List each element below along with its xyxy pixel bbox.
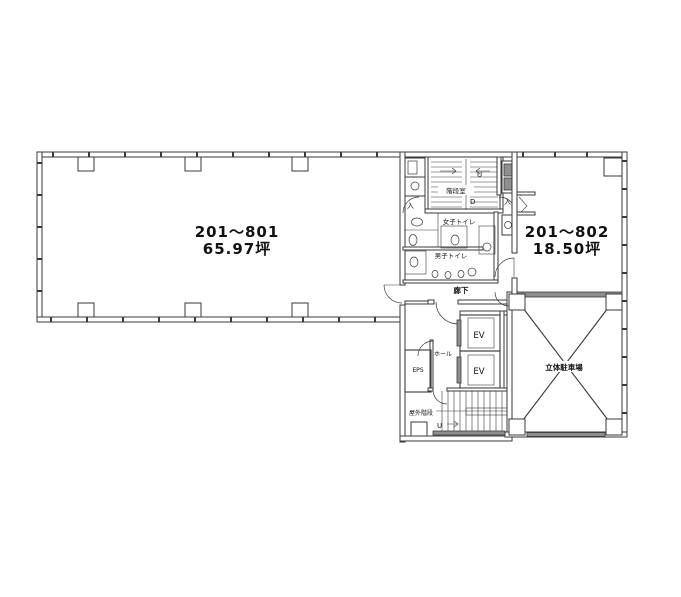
top-exterior-wall: [40, 152, 627, 157]
ev-right-wall: [500, 311, 504, 389]
pillar: [604, 158, 622, 176]
right-exterior-wall: [622, 152, 627, 437]
outdoor-stairs: 屋外階段 U: [406, 388, 512, 436]
room-right-area: 18.50坪: [533, 240, 601, 258]
room-left-name: 201〜801: [195, 223, 280, 241]
pillar: [185, 303, 201, 317]
alcove-wall-stub: [517, 212, 535, 215]
door-arc-left-room: [384, 285, 402, 303]
stairwell-down-label: D: [470, 198, 475, 206]
left-exterior-wall: [37, 152, 42, 322]
entrance-left-label: 入: [407, 202, 414, 210]
elevator-door-2: [457, 357, 461, 383]
pillar: [78, 303, 94, 317]
wall: [447, 388, 512, 391]
folding-door: [519, 197, 527, 214]
stairwell: 階段室 U D: [425, 157, 503, 213]
room-left-area: 65.97坪: [203, 240, 271, 258]
mens-toilet: 男子トイレ: [403, 251, 498, 283]
basin-fixture: [483, 243, 491, 251]
urinal-fixture: [432, 271, 438, 278]
mens-toilet-label: 男子トイレ: [435, 252, 468, 260]
wall: [458, 300, 512, 304]
pillar: [606, 419, 622, 435]
urinal-fixture: [458, 271, 464, 278]
room-right-name: 201〜802: [525, 223, 610, 241]
wall: [497, 157, 501, 195]
sink-fixture: [408, 161, 417, 174]
toilet-fixture: [410, 257, 418, 267]
corridor-label: 廊下: [454, 285, 469, 295]
door-arc-hall: [436, 302, 458, 324]
toilet-fixture: [412, 218, 423, 226]
pillar: [606, 294, 622, 310]
wall: [428, 388, 433, 391]
toilet-divider-wall: [403, 247, 483, 250]
parking-bottom-wall-hatch: [527, 433, 605, 437]
outdoor-stairs-label: 屋外階段: [409, 409, 433, 417]
outdoor-stair-treads: [436, 391, 507, 431]
urinal-fixture: [445, 272, 451, 279]
stairwell-up-label: U: [477, 171, 482, 179]
stairwell-label: 階段室: [446, 186, 466, 195]
hall-label: ホール: [434, 351, 452, 358]
wall: [428, 300, 434, 304]
floor-plan-page: 201〜801 65.97坪 階段室 U D: [0, 0, 681, 597]
core-bottom-wall: [400, 436, 512, 441]
fixture: [505, 222, 512, 229]
core-left-wall-upper: [400, 152, 405, 285]
toilet-fixture: [409, 235, 417, 246]
room-right-left-wall-lower: [512, 278, 517, 295]
core-service-left: 入: [403, 158, 425, 213]
pillar: [509, 419, 525, 435]
hall-elevators: EV EV ホール: [405, 300, 512, 389]
basin-fixture: [468, 268, 476, 276]
stair-arrow-right: [440, 168, 456, 174]
stair-up-arrow: [447, 421, 458, 427]
core-left-wall-lower: [400, 305, 405, 442]
womens-toilet-label: 女子トイレ: [443, 217, 476, 226]
pillar: [411, 422, 427, 436]
floor-plan-drawing: 201〜801 65.97坪 階段室 U D: [0, 0, 681, 597]
pillar: [292, 157, 308, 171]
toilet-fixture: [451, 235, 459, 245]
stair-treads: [431, 159, 498, 210]
eps-shaft: EPS: [405, 350, 431, 392]
toilet-right-wall: [494, 212, 498, 283]
door-arc-stairs: [433, 390, 447, 404]
alcove-wall-stub: [517, 192, 535, 195]
room-right-left-wall-upper: [512, 152, 517, 253]
parking-area: 立体駐車場: [495, 292, 627, 437]
elevator-1-label: EV: [473, 331, 484, 341]
pillar: [509, 294, 525, 310]
parking-label: 立体駐車場: [545, 362, 583, 372]
left-room-bottom-wall: [37, 317, 402, 322]
fixture: [411, 182, 419, 190]
pillar: [78, 157, 94, 171]
parking-left-wall: [507, 292, 512, 437]
pillar: [185, 157, 201, 171]
elevator-door-1: [457, 320, 461, 346]
wall: [405, 301, 428, 304]
pillar: [292, 303, 308, 317]
threshold: [433, 431, 505, 435]
outdoor-stairs-up-label: U: [437, 422, 442, 430]
eps-label: EPS: [412, 367, 423, 374]
stairwell-bottom-wall: [425, 209, 503, 213]
elevator-2-label: EV: [473, 367, 484, 377]
corridor-top-wall: [403, 280, 498, 283]
